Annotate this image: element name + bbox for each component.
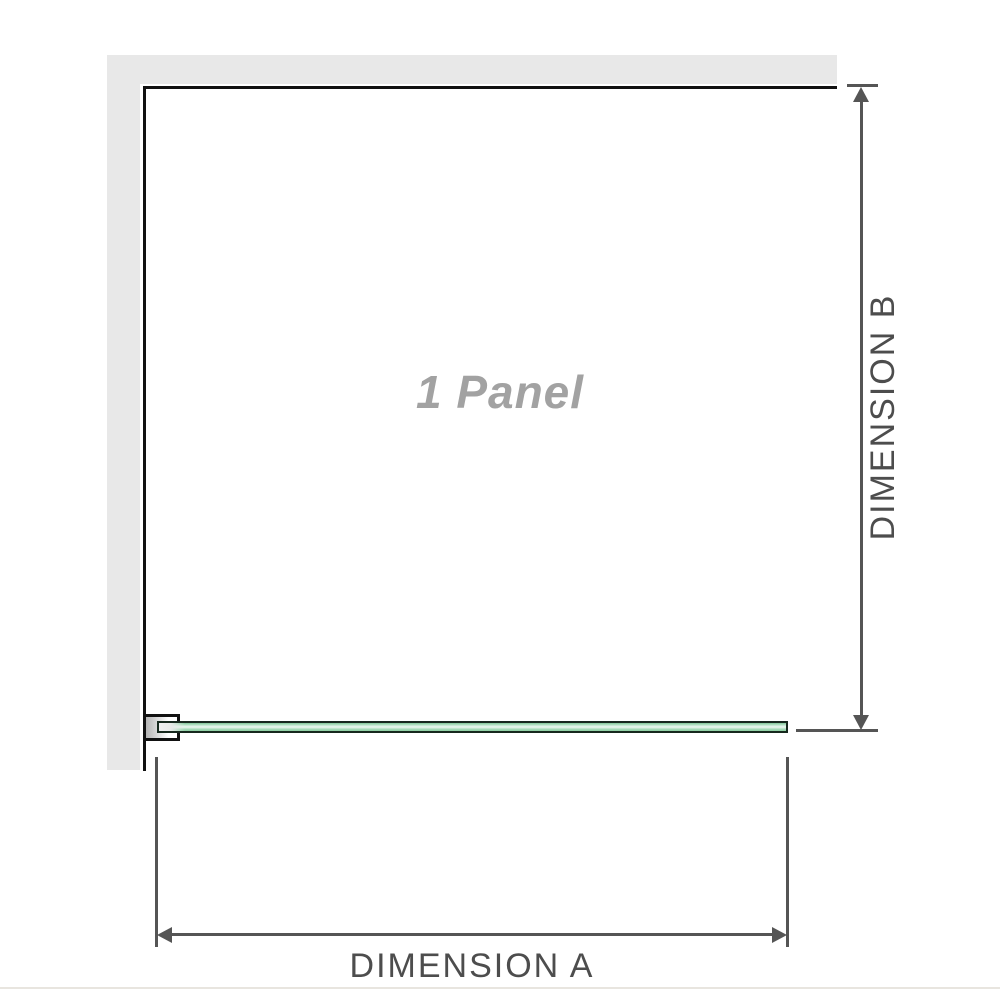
dimension-a-right-extension-line: [786, 757, 789, 947]
panel-title: 1 Panel: [340, 362, 660, 422]
dimension-a-left-extension-line: [155, 757, 158, 947]
footer-divider: [0, 987, 1000, 989]
arrow-up-icon: [853, 87, 869, 102]
panel-dimension-diagram: 1 Panel DIMENSION B DIMENSION A: [0, 0, 1000, 1000]
dimension-b-label: DIMENSION B: [862, 267, 904, 567]
arrow-down-icon: [853, 715, 869, 730]
dimension-a-label: DIMENSION A: [292, 946, 652, 986]
dimension-a-line: [168, 933, 776, 936]
wall-top-segment: [107, 55, 837, 84]
panel-outline-top: [143, 86, 837, 89]
panel-outline-left: [143, 86, 146, 771]
wall-left-segment: [107, 55, 140, 770]
arrow-left-icon: [157, 927, 172, 943]
glass-panel: [157, 721, 788, 733]
arrow-right-icon: [772, 927, 787, 943]
